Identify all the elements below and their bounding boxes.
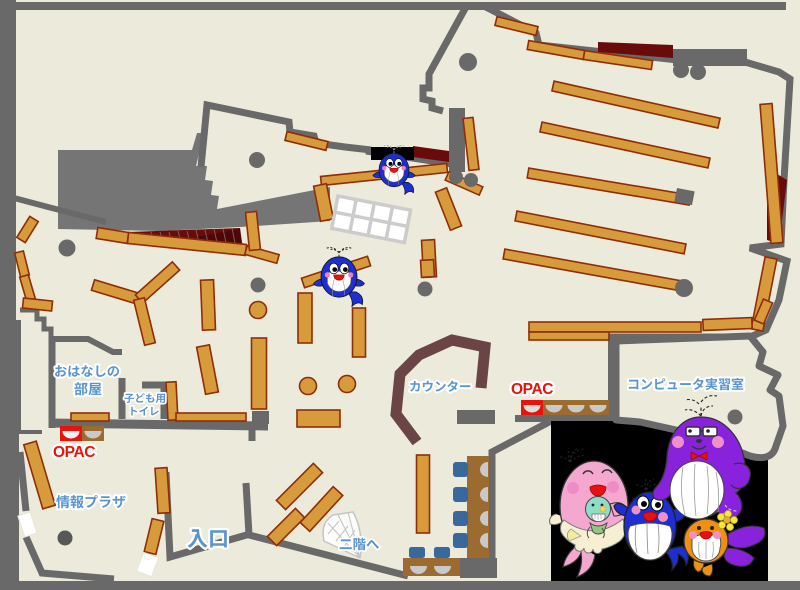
svg-text:OPAC: OPAC bbox=[53, 444, 95, 461]
svg-text:OPAC: OPAC bbox=[511, 381, 553, 398]
